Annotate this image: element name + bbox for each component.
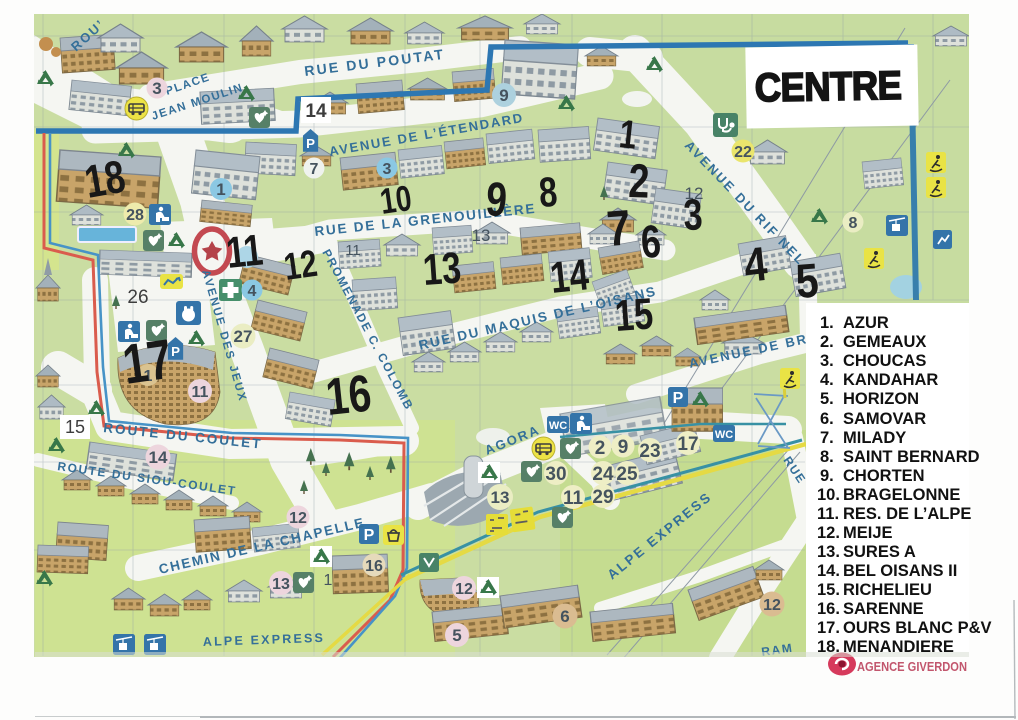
svg-text:9.: 9. — [820, 467, 834, 485]
svg-text:10.: 10. — [817, 486, 840, 504]
svg-text:12.: 12. — [817, 524, 840, 542]
svg-text:15.: 15. — [817, 581, 840, 599]
svg-text:RES. DE L’ALPE: RES. DE L’ALPE — [843, 505, 971, 523]
svg-text:CHOUCAS: CHOUCAS — [843, 352, 926, 370]
svg-text:SURES A: SURES A — [843, 543, 916, 561]
svg-text:RICHELIEU: RICHELIEU — [843, 581, 932, 599]
svg-text:17.: 17. — [817, 619, 840, 637]
svg-text:2.: 2. — [820, 333, 834, 351]
svg-text:AZUR: AZUR — [843, 314, 889, 332]
svg-text:8.: 8. — [820, 448, 834, 466]
svg-text:GEMEAUX: GEMEAUX — [843, 333, 926, 351]
svg-text:4.: 4. — [820, 371, 834, 389]
svg-text:SAINT BERNARD: SAINT BERNARD — [843, 448, 980, 466]
svg-text:16.: 16. — [817, 600, 840, 618]
svg-text:MILADY: MILADY — [843, 429, 906, 447]
svg-text:1.: 1. — [820, 314, 834, 332]
svg-text:5.: 5. — [820, 390, 834, 408]
svg-text:7.: 7. — [820, 429, 834, 447]
svg-text:OURS BLANC P&V: OURS BLANC P&V — [843, 619, 992, 637]
svg-text:CENTRE: CENTRE — [754, 63, 901, 111]
svg-text:HORIZON: HORIZON — [843, 390, 919, 408]
svg-text:6.: 6. — [820, 410, 834, 428]
svg-text:3.: 3. — [820, 352, 834, 370]
svg-text:11.: 11. — [817, 505, 839, 523]
svg-text:SAMOVAR: SAMOVAR — [843, 410, 926, 428]
svg-text:BEL OISANS II: BEL OISANS II — [843, 562, 957, 580]
svg-text:AGENCE GIVERDON: AGENCE GIVERDON — [857, 659, 967, 674]
svg-text:SARENNE: SARENNE — [843, 600, 924, 618]
svg-text:14.: 14. — [817, 562, 840, 580]
svg-text:BRAGELONNE: BRAGELONNE — [843, 486, 960, 504]
svg-text:KANDAHAR: KANDAHAR — [843, 371, 938, 389]
svg-text:MEIJE: MEIJE — [843, 524, 893, 542]
svg-text:CHORTEN: CHORTEN — [843, 467, 925, 485]
svg-text:13.: 13. — [817, 543, 840, 561]
